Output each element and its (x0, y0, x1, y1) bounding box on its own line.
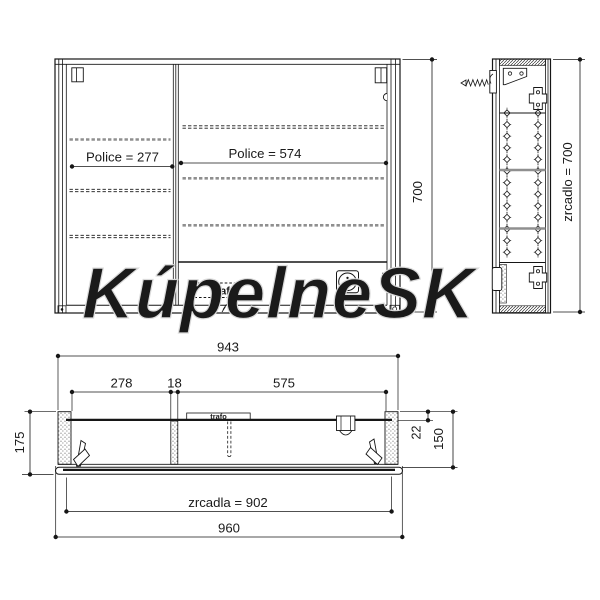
hinge-icon (74, 441, 90, 467)
dim-960-label: 960 (218, 521, 240, 536)
mirror-door-section (56, 467, 403, 474)
watermark: KúpelneSK (82, 254, 479, 334)
dim-943-label: 943 (217, 340, 239, 355)
door-knob-icon (383, 94, 387, 101)
mounting-screw-icon (461, 71, 496, 94)
dim-278-label: 278 (110, 376, 132, 391)
hinge-plate-icon (503, 68, 526, 84)
trafo-plan-label: trafo (210, 412, 227, 421)
adjustable-shelf-lines-right (183, 126, 385, 226)
lock-fitting-icon (492, 265, 506, 304)
cabinet-technical-drawing: Police = 277 Police = 574 trafo 700 (0, 0, 600, 600)
plan-view (56, 412, 403, 475)
dim-175-label: 175 (12, 431, 27, 453)
height-700-dim-label: 700 (410, 181, 425, 203)
cross-fitting-icon (529, 88, 546, 110)
divider-section (171, 421, 178, 464)
zrcadlo-dim-label: zrcadlo = 700 (560, 142, 575, 222)
technical-drawing-page: Police = 277 Police = 574 trafo 700 (0, 0, 600, 600)
dim-zrcadla-902-label: zrcadla = 902 (188, 495, 268, 510)
dim-22-label: 22 (410, 426, 424, 440)
cross-fitting-icon (529, 267, 546, 289)
police-right-dim-label: Police = 574 (229, 146, 302, 161)
dim-150-label: 150 (431, 428, 446, 450)
corner-fitting-icon (58, 306, 66, 313)
dim-575-label: 575 (273, 376, 295, 391)
hinge-bracket-icon (72, 68, 84, 82)
power-cable (228, 422, 231, 457)
shelf-pin-column (503, 108, 542, 258)
hinge-bracket-icon (375, 68, 387, 83)
police-left-dim-label: Police = 277 (86, 150, 159, 165)
bottom-hatch-band (500, 306, 546, 313)
top-hatch-band (500, 59, 546, 65)
latch-catch-icon (337, 416, 355, 435)
hinge-icon (366, 439, 382, 465)
dim-18-label: 18 (167, 376, 182, 391)
